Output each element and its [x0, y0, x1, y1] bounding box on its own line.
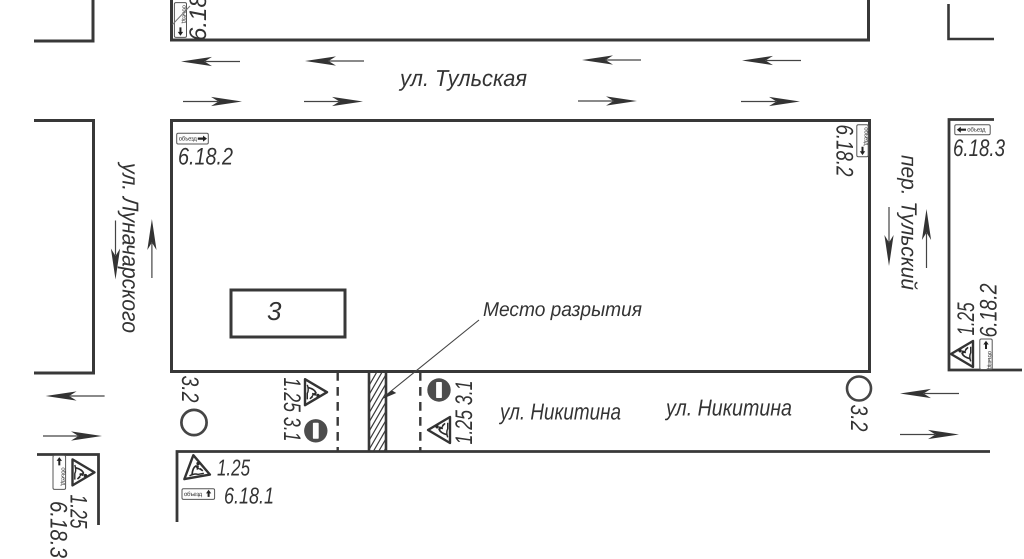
svg-text:ул. Луначарского: ул. Луначарского — [118, 161, 144, 333]
svg-text:объезд: объезд — [967, 127, 986, 134]
svg-text:6.18.2: 6.18.2 — [185, 0, 212, 41]
svg-text:6.18.3: 6.18.3 — [953, 135, 1006, 162]
svg-text:6.18.2: 6.18.2 — [976, 284, 1003, 338]
svg-text:объезд: объезд — [179, 136, 198, 143]
svg-text:объезд: объезд — [60, 467, 67, 486]
svg-text:1.25 3.1: 1.25 3.1 — [451, 381, 478, 445]
svg-text:пер. Тульский: пер. Тульский — [897, 155, 922, 290]
svg-text:6.18.2: 6.18.2 — [178, 144, 233, 171]
svg-text:ул. Никитина: ул. Никитина — [498, 399, 621, 425]
svg-text:Место разрытия: Место разрытия — [483, 299, 642, 321]
svg-text:объезд: объезд — [184, 491, 203, 498]
svg-text:6.18.1: 6.18.1 — [224, 483, 274, 509]
svg-text:объезд: объезд — [863, 127, 870, 146]
svg-text:ул. Никитина: ул. Никитина — [664, 395, 792, 421]
svg-text:ул. Тульская: ул. Тульская — [398, 65, 527, 91]
svg-text:6.18.2: 6.18.2 — [831, 125, 858, 177]
svg-text:1.25: 1.25 — [217, 455, 250, 481]
svg-text:3: 3 — [267, 296, 282, 326]
svg-text:1.25 3.1: 1.25 3.1 — [278, 378, 305, 442]
svg-text:3.2: 3.2 — [176, 376, 203, 403]
svg-text:6.18.3: 6.18.3 — [45, 501, 72, 559]
svg-text:3.2: 3.2 — [845, 405, 872, 432]
svg-text:объезд: объезд — [986, 351, 993, 370]
